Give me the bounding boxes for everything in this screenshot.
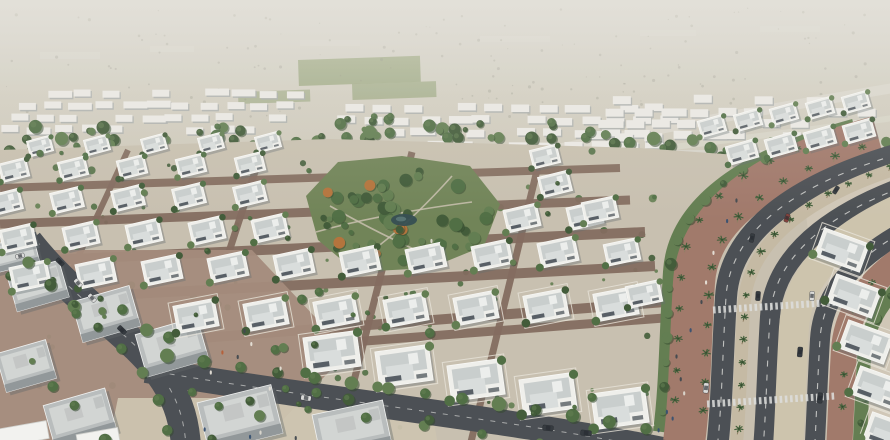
light-wash xyxy=(0,0,890,440)
aerial-render: Aerial rendering of a desert villa commu… xyxy=(0,0,890,440)
haze-overlay xyxy=(0,0,890,440)
scene-svg: Aerial rendering of a desert villa commu… xyxy=(0,0,890,440)
